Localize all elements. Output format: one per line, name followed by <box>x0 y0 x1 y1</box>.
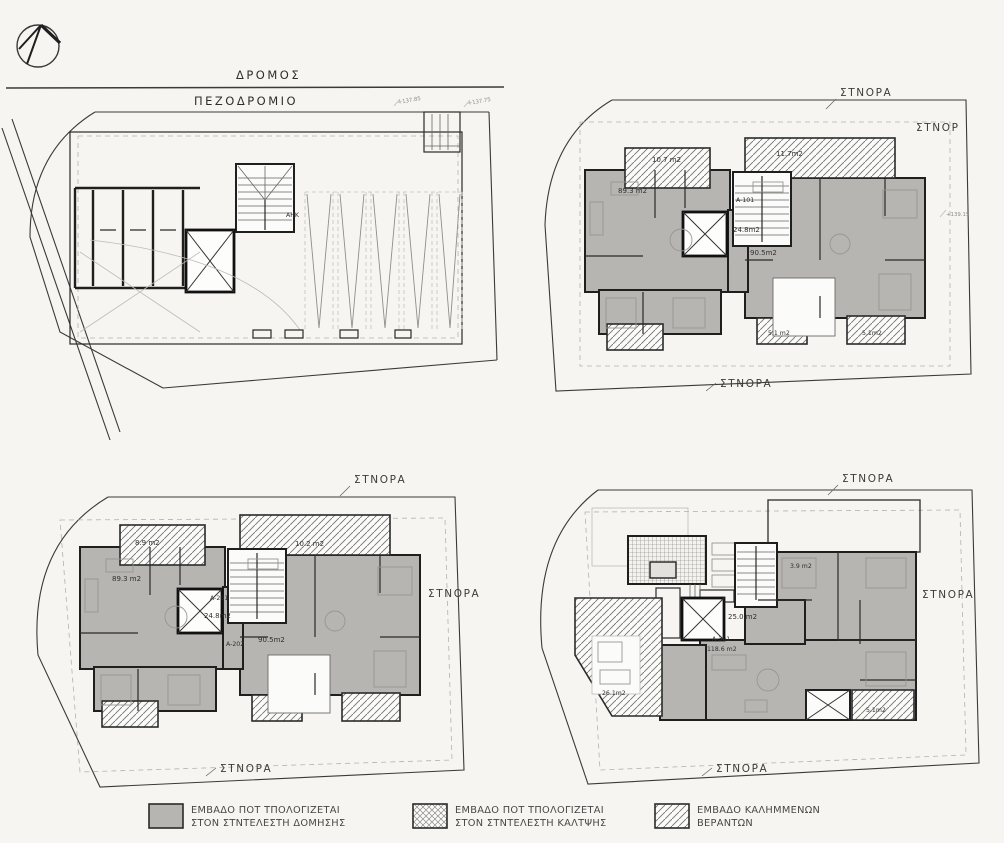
sidewalk-label: ΠΕΖΟΔΡΟΜΙΟ <box>194 94 298 108</box>
area-label: 26.1m2 <box>602 690 626 697</box>
area-label: 89.3 m2 <box>618 187 647 195</box>
level-marks: +137.85 +137.75 <box>394 96 491 107</box>
legend-text: ΕΜΒΑΔΟ ΠΟΤ ΤΠΟΛΟΓΙΖΕΤΑΙ <box>191 805 340 816</box>
area-label: 90.5m2 <box>750 249 777 257</box>
road-label: ΔΡΟΜΟΣ <box>236 68 301 82</box>
area-label: 3.9 m2 <box>790 563 812 570</box>
legend-swatch-coverage-coefficient <box>413 804 447 828</box>
area-label: 90.5m2 <box>258 636 285 644</box>
area-label: 8.9 m2 <box>135 539 160 547</box>
level-mark: +139.15 <box>946 212 969 218</box>
area-label: 5.1 m2 <box>768 330 790 337</box>
svg-text:+137.85: +137.85 <box>397 96 421 106</box>
legend-swatch-building-coefficient <box>149 804 183 828</box>
area-label: 24.8m2 <box>204 612 231 620</box>
area-label: 24.8m2 <box>733 226 760 234</box>
boundary-label: ΣΤΝΟΡΑ <box>922 589 974 601</box>
legend-text: ΕΜΒΑΔΟ ΠΟΤ ΤΠΟΛΟΓΙΖΕΤΑΙ <box>455 805 604 816</box>
boundary-label: ΣΤΝΟΡ <box>916 122 960 134</box>
third-floor-plan: ΣΤΝΟΡΑ ΣΤΝΟΡΑ ΣΤΝΟΡΑ 3.9 m2 25.0 m2 A-30… <box>541 473 979 784</box>
legend-text: ΒΕΡΑΝΤΩΝ <box>697 818 753 829</box>
area-label: 25.0 m2 <box>728 613 757 621</box>
area-label: 11.7m2 <box>776 150 803 158</box>
boundary-label: ΣΤΝΟΡΑ <box>842 473 894 485</box>
area-label: 5.1m2 <box>866 707 886 714</box>
apartment-code: A-301 <box>712 636 730 643</box>
ground-floor-plan: ΔΡΟΜΟΣ ΠΕΖΟΔΡΟΜΙΟ ΑΗΚ <box>2 68 504 440</box>
legend: ΕΜΒΑΔΟ ΠΟΤ ΤΠΟΛΟΓΙΖΕΤΑΙ ΣΤΟΝ ΣΤΝΤΕΛΕΣΤΗ … <box>149 804 820 829</box>
first-floor-plan: ΣΤΝΟΡΑ ΣΤΝΟΡ ΣΤΝΟΡΑ 10.7 m2 11.7m2 89.3 … <box>545 87 971 391</box>
legend-text: ΣΤΟΝ ΣΤΝΤΕΛΕΣΤΗ ΚΑΛΤΨΗΣ <box>455 818 607 829</box>
svg-text:+137.75: +137.75 <box>467 97 491 107</box>
utility-room-label: ΑΗΚ <box>286 212 300 219</box>
boundary-label: ΣΤΝΟΡΑ <box>220 763 272 775</box>
boundary-label: ΣΤΝΟΡΑ <box>428 588 480 600</box>
area-label: 118.6 m2 <box>707 646 737 653</box>
boundary-label: ΣΤΝΟΡΑ <box>354 474 406 486</box>
apartment-code: A-101 <box>736 197 754 204</box>
apartment-code: A-201 <box>210 595 228 602</box>
boundary-label: ΣΤΝΟΡΑ <box>720 378 772 390</box>
floor-plan-sheet: ΔΡΟΜΟΣ ΠΕΖΟΔΡΟΜΙΟ ΑΗΚ <box>0 0 1004 843</box>
second-floor-plan: ΣΤΝΟΡΑ ΣΤΝΟΡΑ ΣΤΝΟΡΑ 8.9 m2 10.2 m2 89.3… <box>37 474 480 787</box>
legend-text: ΕΜΒΑΔΟ ΚΑΛΗΜΜΕΝΩΝ <box>697 805 820 816</box>
area-label: 89.3 m2 <box>112 575 141 583</box>
boundary-label: ΣΤΝΟΡΑ <box>840 87 892 99</box>
north-arrow-icon <box>17 25 60 67</box>
area-label: 5.1m2 <box>862 330 882 337</box>
architectural-drawing: ΔΡΟΜΟΣ ΠΕΖΟΔΡΟΜΙΟ ΑΗΚ <box>0 0 1004 843</box>
legend-swatch-covered-verandas <box>655 804 689 828</box>
area-label: 10.2 m2 <box>295 540 324 548</box>
apartment-code: A-202 <box>226 641 244 648</box>
boundary-label: ΣΤΝΟΡΑ <box>716 763 768 775</box>
area-label: 10.7 m2 <box>652 156 681 164</box>
legend-text: ΣΤΟΝ ΣΤΝΤΕΛΕΣΤΗ ΔΟΜΗΣΗΣ <box>191 818 345 829</box>
